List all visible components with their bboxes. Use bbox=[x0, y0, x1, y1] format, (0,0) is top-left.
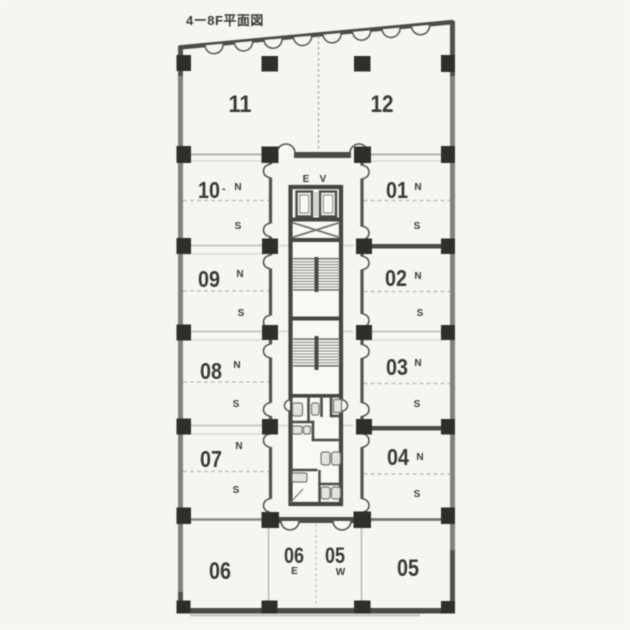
svg-text:01: 01 bbox=[386, 177, 408, 203]
svg-text:S: S bbox=[238, 308, 245, 319]
svg-text:07: 07 bbox=[200, 446, 222, 472]
svg-text:04: 04 bbox=[387, 444, 409, 470]
svg-text:S: S bbox=[414, 489, 421, 500]
svg-text:02: 02 bbox=[385, 265, 407, 291]
svg-text:N: N bbox=[414, 182, 421, 193]
svg-text:11: 11 bbox=[229, 91, 252, 118]
svg-text:12: 12 bbox=[371, 91, 394, 118]
svg-text:06: 06 bbox=[284, 543, 304, 568]
svg-text:E: E bbox=[291, 566, 298, 577]
svg-text:09: 09 bbox=[198, 266, 220, 292]
svg-text:S: S bbox=[417, 308, 424, 319]
svg-text:N: N bbox=[416, 452, 423, 463]
svg-text:05: 05 bbox=[397, 555, 419, 582]
svg-text:N: N bbox=[233, 360, 240, 371]
svg-text:W: W bbox=[336, 567, 346, 578]
svg-text:06: 06 bbox=[209, 558, 231, 585]
svg-text:03: 03 bbox=[386, 354, 408, 380]
svg-text:4ー8F平面図: 4ー8F平面図 bbox=[186, 13, 264, 28]
svg-text:N: N bbox=[236, 269, 243, 280]
svg-text:E: E bbox=[303, 174, 310, 185]
svg-text:05: 05 bbox=[325, 543, 345, 568]
svg-text:S: S bbox=[414, 221, 421, 232]
svg-text:-: - bbox=[222, 183, 226, 195]
svg-text:S: S bbox=[233, 399, 240, 410]
svg-text:V: V bbox=[320, 174, 327, 185]
svg-text:10: 10 bbox=[198, 177, 220, 203]
svg-text:N: N bbox=[234, 182, 241, 193]
svg-text:S: S bbox=[235, 221, 242, 232]
svg-text:S: S bbox=[414, 399, 421, 410]
svg-text:N: N bbox=[414, 358, 421, 369]
svg-text:08: 08 bbox=[200, 358, 222, 384]
svg-text:S: S bbox=[233, 485, 240, 496]
svg-text:N: N bbox=[235, 441, 242, 452]
svg-text:N: N bbox=[414, 271, 421, 282]
